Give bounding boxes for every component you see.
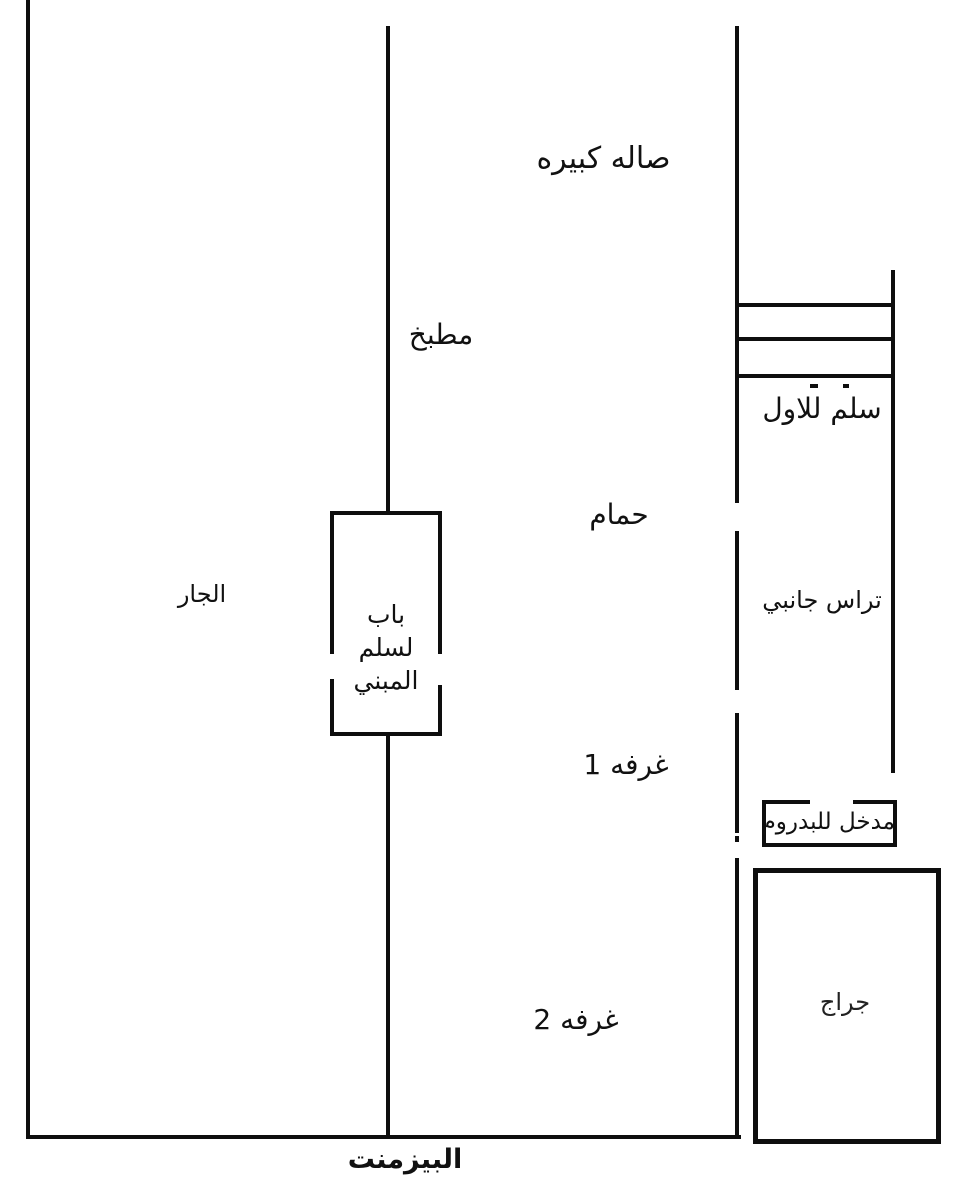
- basement-entrance-box-top-left-edge: [762, 800, 810, 804]
- stairwell-door-label: باب لسلم المبني: [334, 598, 438, 697]
- neighbor-label: الجار: [170, 580, 234, 609]
- center-wall-upper: [386, 26, 390, 513]
- staircase-outer-wall: [891, 270, 895, 773]
- stairwell-box-bottom-edge: [330, 732, 442, 736]
- right-wall-dash: [735, 836, 739, 842]
- garage-label: جراج: [808, 988, 882, 1017]
- room2-label: غرفه 2: [528, 1003, 624, 1037]
- stair-tread: [738, 337, 891, 341]
- right-wall-segment-1: [735, 26, 739, 503]
- hall-label: صاله كبيره: [536, 141, 671, 177]
- center-wall-lower: [386, 733, 390, 1136]
- kitchen-label: مطبخ: [398, 318, 484, 352]
- basement-entrance-box-bottom-edge: [762, 843, 897, 847]
- stairwell-box-top-edge: [330, 511, 442, 515]
- stair-tread: [738, 303, 891, 307]
- stairwell-door-label-line3: المبني: [334, 664, 438, 697]
- stairwell-door-label-line1: باب: [334, 598, 438, 631]
- left-boundary-wall: [26, 0, 30, 1139]
- floor-plan-canvas: صاله كبيره مطبخ سلم للاول حمام الجار ترا…: [0, 0, 972, 1200]
- stairs-to-first-label: سلم للاول: [756, 392, 888, 426]
- stair-tread: [738, 374, 891, 378]
- stray-mark: [810, 384, 818, 388]
- stairwell-box-right-edge-lower: [438, 685, 442, 736]
- right-wall-segment-2: [735, 531, 739, 690]
- bathroom-label: حمام: [581, 498, 657, 532]
- room1-label: غرفه 1: [578, 748, 674, 782]
- stray-mark: [843, 384, 849, 388]
- basement-entrance-label: مدخل للبدروم: [763, 809, 895, 837]
- right-wall-segment-3: [735, 713, 739, 833]
- side-terrace-label: تراس جانبي: [758, 586, 886, 615]
- stairwell-door-label-line2: لسلم: [334, 631, 438, 664]
- bottom-boundary-wall: [26, 1135, 741, 1139]
- basement-title-label: البيزمنت: [340, 1144, 470, 1176]
- stairwell-box-right-edge-upper: [438, 511, 442, 654]
- basement-entrance-box-top-right-edge: [853, 800, 897, 804]
- right-wall-segment-4: [735, 858, 739, 1136]
